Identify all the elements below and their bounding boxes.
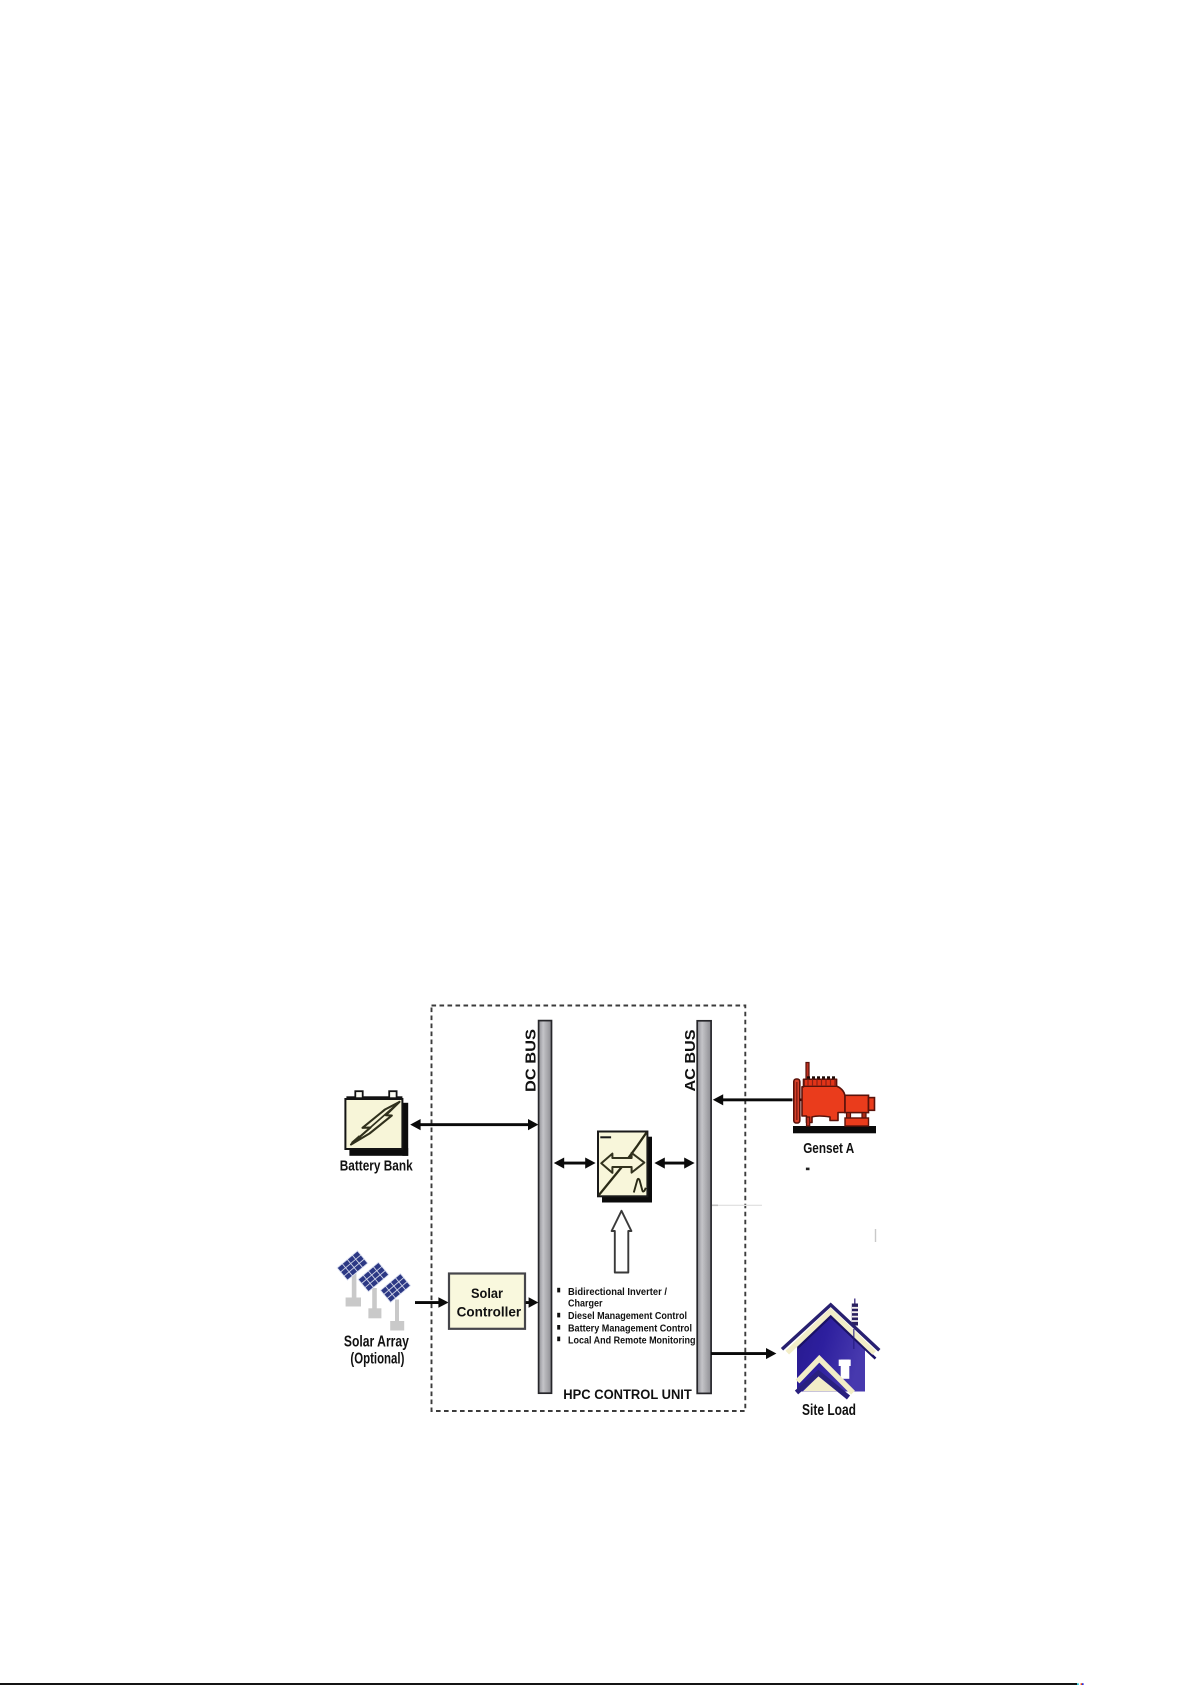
svg-text:AC BUS: AC BUS: [682, 1030, 699, 1092]
svg-text:Bidirectional Inverter /: Bidirectional Inverter /: [568, 1287, 667, 1298]
svg-text:(Optional): (Optional): [350, 1351, 404, 1368]
svg-text:HPC CONTROL UNIT: HPC CONTROL UNIT: [563, 1387, 692, 1402]
svg-text:Controller: Controller: [457, 1303, 522, 1319]
svg-text:Diesel Management Control: Diesel Management Control: [568, 1311, 687, 1322]
svg-text:Solar Array: Solar Array: [344, 1334, 409, 1351]
svg-text:Charger: Charger: [568, 1298, 603, 1309]
svg-text:Battery Bank: Battery Bank: [340, 1158, 414, 1175]
svg-text:Site Load: Site Load: [802, 1402, 856, 1419]
svg-text:Genset A: Genset A: [803, 1140, 854, 1157]
svg-text:Local And Remote Monitoring: Local And Remote Monitoring: [568, 1335, 696, 1346]
svg-text:Solar: Solar: [471, 1285, 504, 1301]
svg-text:DC BUS: DC BUS: [522, 1029, 539, 1092]
svg-text:Battery Management Control: Battery Management Control: [568, 1323, 692, 1334]
